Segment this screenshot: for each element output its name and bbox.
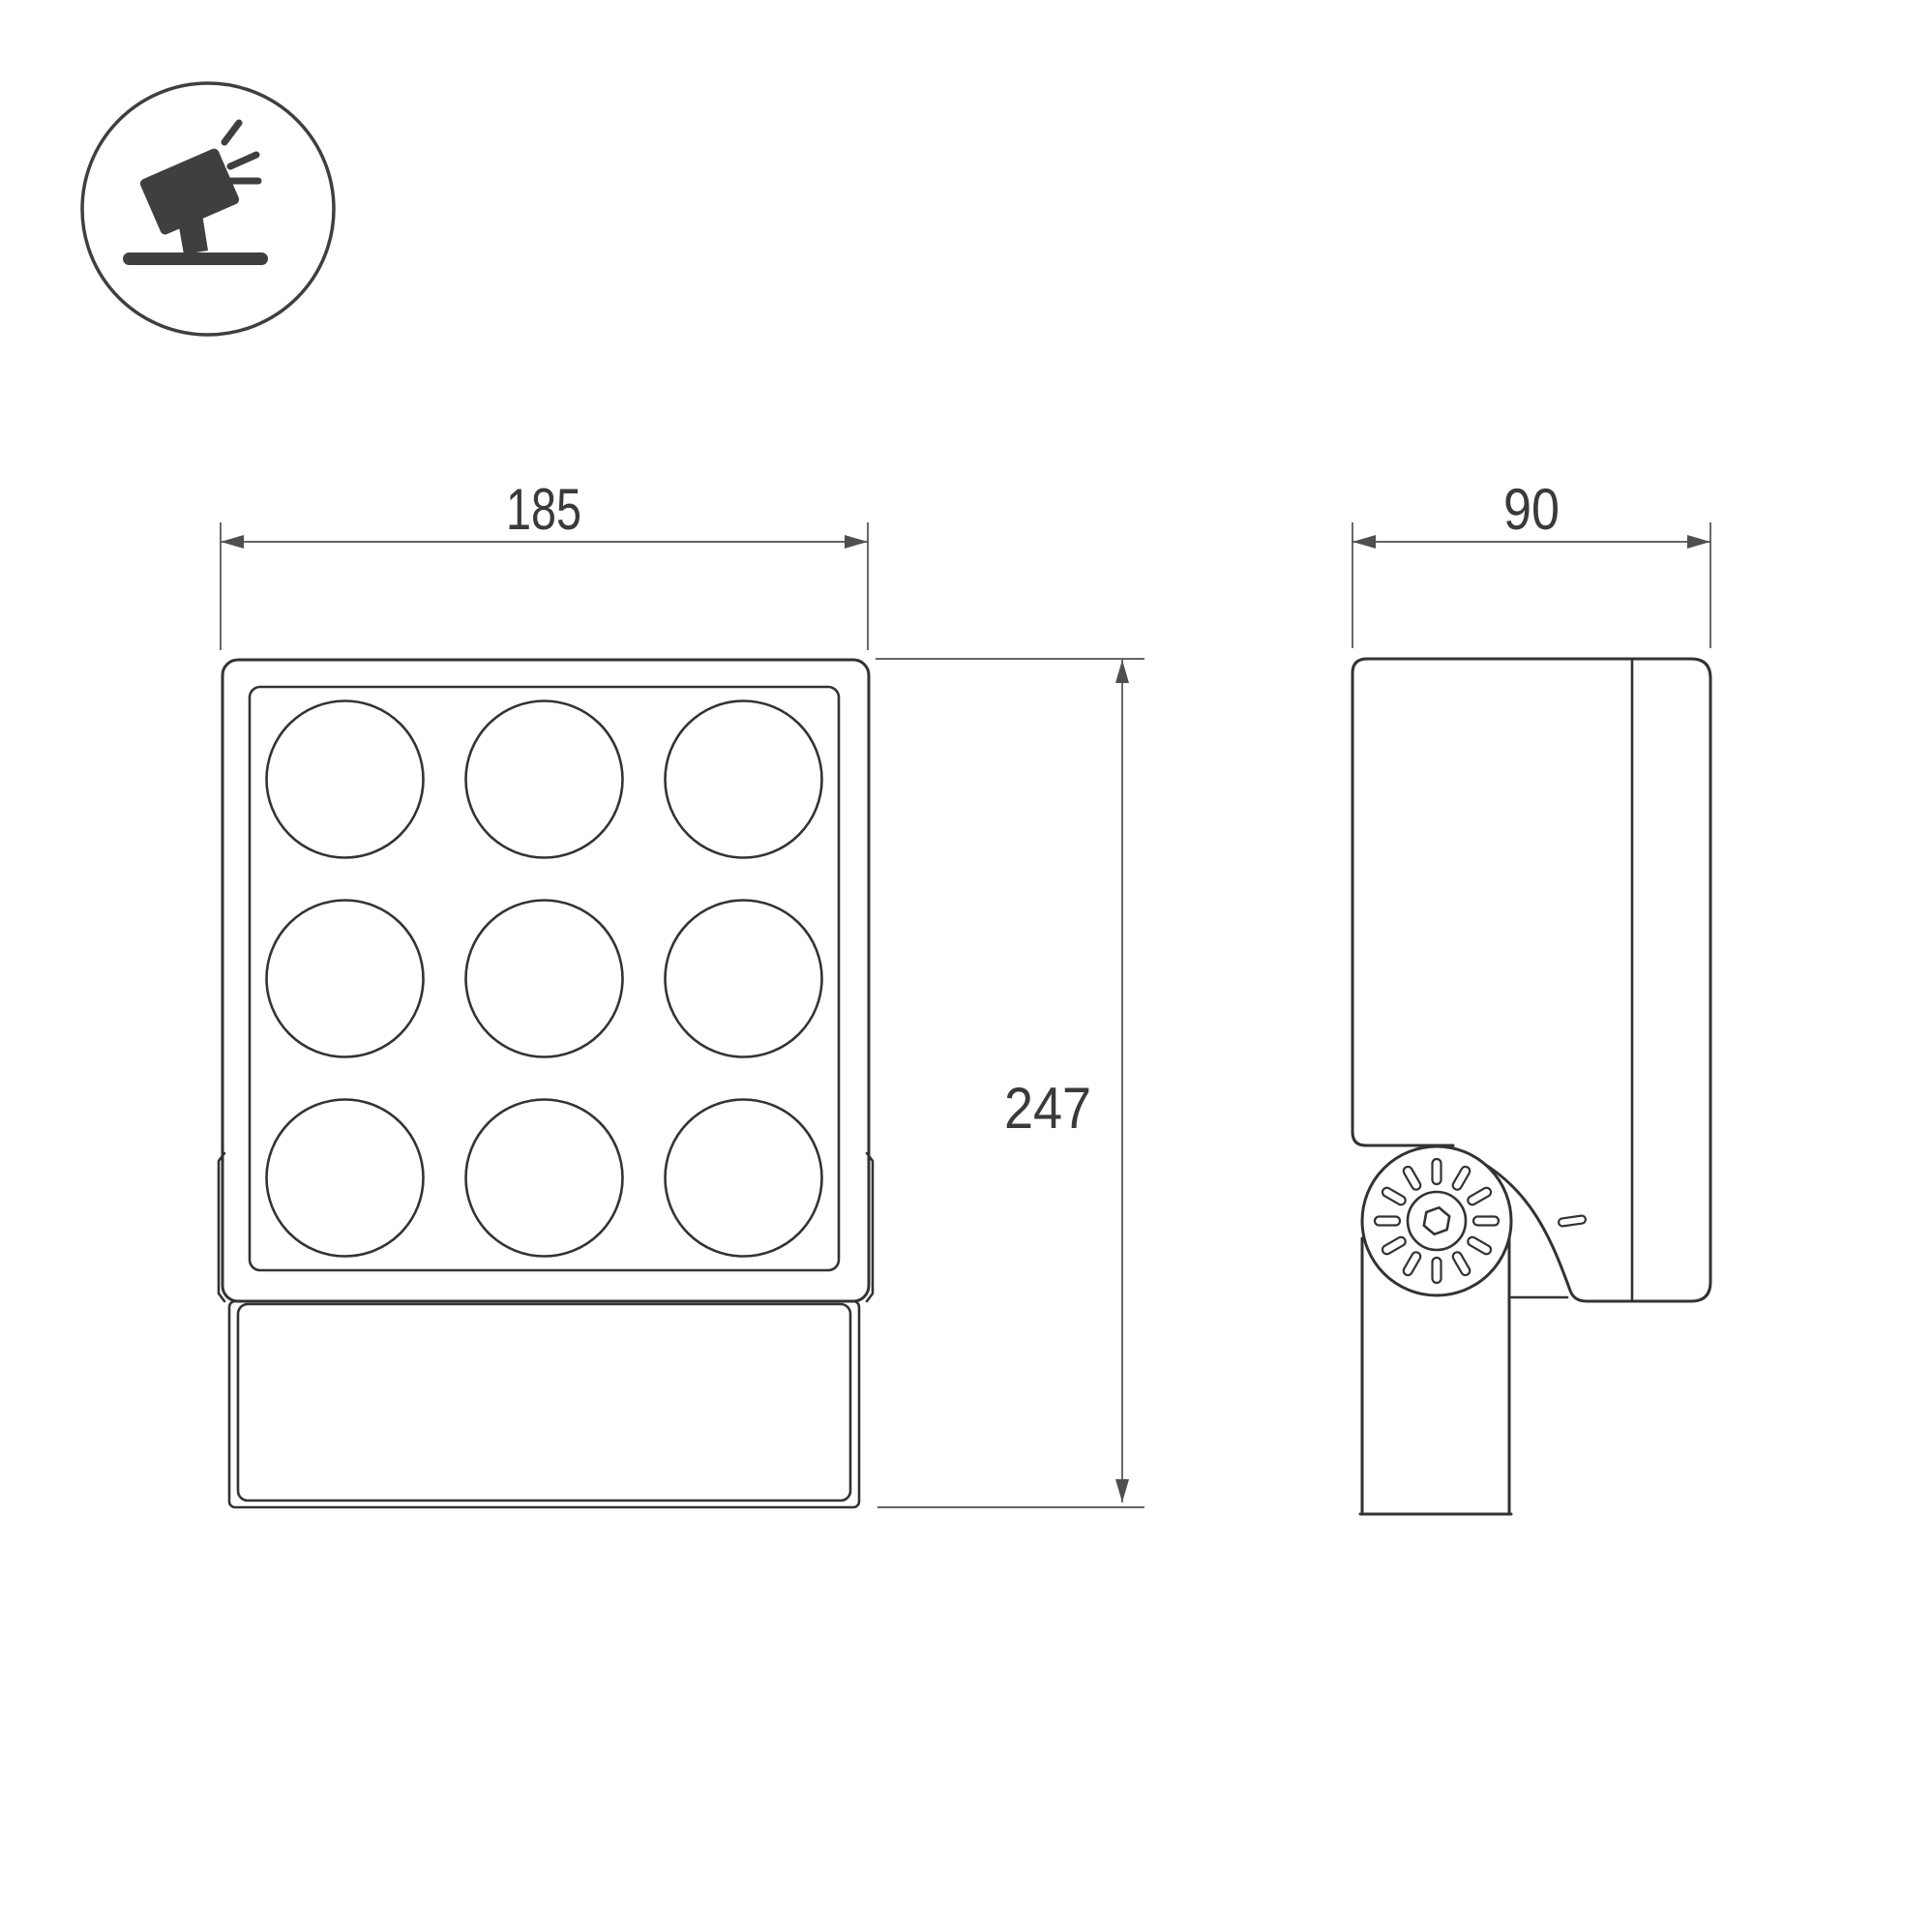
dimension-side-depth: 90: [1352, 477, 1710, 648]
front-bracket-outer: [229, 1301, 859, 1507]
arrowhead-bottom: [1115, 1479, 1129, 1502]
lens-circle: [267, 701, 424, 858]
lens-circle: [666, 1100, 822, 1257]
lens-circle: [267, 1100, 424, 1257]
front-bracket-inner: [238, 1304, 850, 1501]
dimension-front-width: 185: [221, 477, 868, 650]
lens-circle: [466, 1100, 623, 1257]
knob-slot: [1433, 1159, 1442, 1184]
lens-circle: [666, 701, 822, 858]
dimension-label-depth: 90: [1503, 477, 1560, 542]
light-ray-icon: [224, 123, 239, 142]
lens-circle: [466, 901, 623, 1057]
dimension-label-width: 185: [506, 477, 581, 542]
floodlight-base-icon: [123, 253, 268, 265]
arrowhead-left: [1352, 535, 1376, 549]
floodlight-type-icon: [82, 83, 334, 335]
side-view: [1352, 659, 1710, 1514]
front-view: [219, 660, 873, 1507]
front-housing-body: [223, 660, 869, 1301]
knob-slot: [1375, 1217, 1400, 1226]
arrowhead-right: [1687, 535, 1710, 549]
arrowhead-right: [845, 535, 868, 549]
knob-slot: [1433, 1258, 1442, 1283]
front-lens-frame: [250, 687, 839, 1270]
lens-circle: [466, 701, 623, 858]
light-ray-icon: [230, 155, 256, 166]
dimension-front-height: 247: [876, 659, 1144, 1507]
technical-drawing-canvas: 185 90 247: [0, 0, 1932, 1932]
knob-slot: [1473, 1217, 1499, 1226]
dimension-label-height: 247: [1004, 1076, 1091, 1141]
lens-circle: [666, 901, 822, 1057]
bracket-arm-slot: [1559, 1215, 1587, 1227]
lens-circle: [267, 901, 424, 1057]
lens-grid: [267, 701, 822, 1257]
side-housing-bottom-left: [1352, 1132, 1453, 1145]
arrowhead-left: [221, 535, 244, 549]
adjustment-knob: [1362, 1146, 1511, 1295]
arrowhead-top: [1115, 660, 1129, 683]
